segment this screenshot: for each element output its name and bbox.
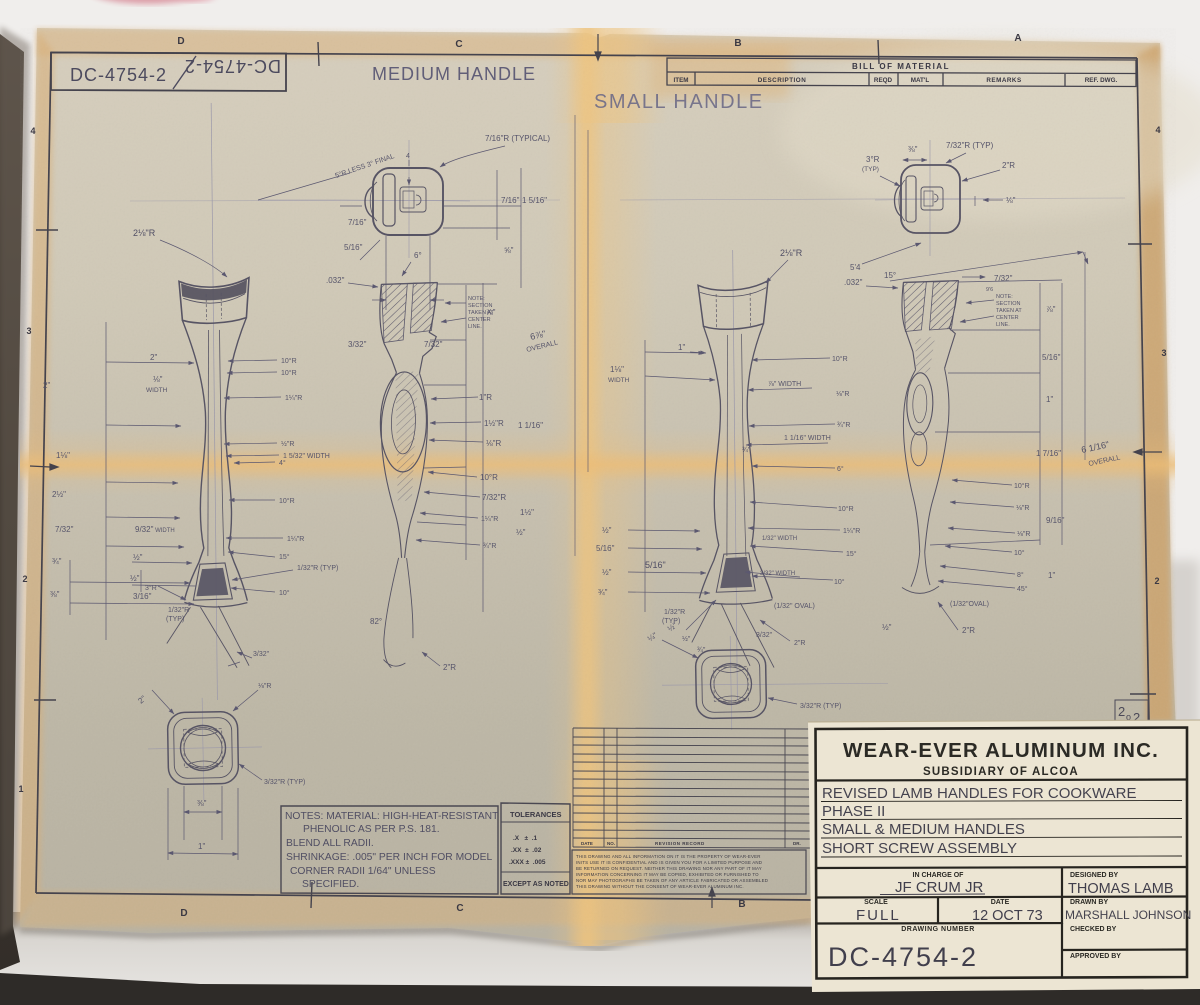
svg-text:(TYP): (TYP) bbox=[862, 166, 879, 173]
svg-text:10°: 10° bbox=[1014, 549, 1025, 557]
svg-text:3/16": 3/16" bbox=[133, 592, 152, 601]
svg-text:⅞": ⅞" bbox=[1046, 305, 1056, 314]
svg-text:6°: 6° bbox=[837, 465, 844, 473]
svg-text:3: 3 bbox=[26, 326, 31, 336]
svg-text:1⅛": 1⅛" bbox=[56, 451, 70, 460]
svg-text:LINE.: LINE. bbox=[468, 324, 482, 330]
svg-text:SHRINKAGE: .005" PER INCH FOR: SHRINKAGE: .005" PER INCH FOR MODEL bbox=[286, 852, 492, 863]
svg-text:BILL OF MATERIAL: BILL OF MATERIAL bbox=[852, 62, 950, 71]
svg-text:⅛"R: ⅛"R bbox=[486, 439, 502, 448]
svg-text:WEAR-EVER ALUMINUM INC.: WEAR-EVER ALUMINUM INC. bbox=[843, 739, 1159, 762]
svg-text:⅛"R: ⅛"R bbox=[1016, 505, 1029, 512]
svg-text:⅛"R: ⅛"R bbox=[1017, 531, 1030, 538]
svg-text:1⅛": 1⅛" bbox=[610, 365, 624, 374]
svg-text:WIDTH: WIDTH bbox=[146, 387, 168, 394]
svg-text:APPROVED BY: APPROVED BY bbox=[1070, 953, 1121, 960]
svg-text:1 5/32" WIDTH: 1 5/32" WIDTH bbox=[283, 453, 330, 460]
svg-text:SMALL HANDLE: SMALL HANDLE bbox=[594, 91, 764, 113]
svg-text:3/32" WIDTH: 3/32" WIDTH bbox=[760, 571, 795, 577]
svg-text:1 1/16": 1 1/16" bbox=[518, 421, 543, 430]
svg-text:5/16": 5/16" bbox=[344, 243, 363, 252]
svg-text:3°R: 3°R bbox=[866, 155, 880, 164]
svg-text:5'4: 5'4 bbox=[850, 263, 861, 272]
svg-text:NOR MAY PHOTOGRAPHS BE TAKEN O: NOR MAY PHOTOGRAPHS BE TAKEN OF ANY ARTI… bbox=[576, 878, 768, 883]
svg-text:TOLERANCES: TOLERANCES bbox=[510, 810, 562, 819]
svg-text:10°: 10° bbox=[279, 589, 290, 597]
svg-text:CENTER: CENTER bbox=[996, 315, 1019, 321]
svg-text:3: 3 bbox=[1161, 348, 1166, 358]
svg-text:12 OCT 73: 12 OCT 73 bbox=[972, 908, 1043, 924]
svg-text:1/32"R (TYP): 1/32"R (TYP) bbox=[297, 565, 338, 572]
svg-text:½": ½" bbox=[516, 528, 526, 537]
svg-text:ITEM: ITEM bbox=[673, 77, 688, 84]
svg-text:¾"R: ¾"R bbox=[483, 543, 496, 550]
svg-text:INITS USE IT IS CONFIDENTIAL A: INITS USE IT IS CONFIDENTIAL AND IS GIVE… bbox=[576, 860, 762, 865]
svg-text:(TYP): (TYP) bbox=[166, 616, 184, 623]
svg-text:B: B bbox=[734, 38, 741, 49]
svg-text:1½": 1½" bbox=[520, 508, 534, 517]
svg-text:C: C bbox=[456, 903, 463, 914]
svg-text:45°: 45° bbox=[1017, 585, 1028, 593]
svg-text:½": ½" bbox=[882, 623, 892, 632]
svg-text:⅜": ⅜" bbox=[908, 145, 918, 154]
svg-text:3/32"R (TYP): 3/32"R (TYP) bbox=[800, 703, 841, 710]
svg-text:REQD: REQD bbox=[874, 77, 893, 84]
svg-text:DR.: DR. bbox=[793, 841, 801, 846]
svg-text:BLEND ALL RADII.: BLEND ALL RADII. bbox=[286, 838, 374, 849]
svg-text:DESCRIPTION: DESCRIPTION bbox=[758, 77, 807, 84]
svg-text:½": ½" bbox=[133, 553, 143, 562]
svg-text:4°: 4° bbox=[279, 459, 286, 467]
svg-text:2": 2" bbox=[150, 353, 157, 362]
svg-text:9'6: 9'6 bbox=[986, 287, 993, 293]
svg-text:NO.: NO. bbox=[607, 841, 615, 846]
svg-text:½"R: ½"R bbox=[281, 440, 294, 448]
svg-text:C: C bbox=[455, 39, 462, 50]
svg-text:PHENOLIC AS PER P.S. 181.: PHENOLIC AS PER P.S. 181. bbox=[303, 824, 440, 835]
svg-text:15°: 15° bbox=[846, 550, 857, 558]
svg-text:10°R: 10°R bbox=[281, 357, 297, 365]
svg-text:1¼"R: 1¼"R bbox=[287, 536, 304, 543]
svg-text:½": ½" bbox=[130, 574, 140, 583]
svg-text:FULL: FULL bbox=[856, 907, 901, 924]
svg-text:¾": ¾" bbox=[598, 588, 608, 597]
svg-text:.XX ± .02: .XX ± .02 bbox=[511, 847, 542, 854]
svg-text:2⅛"R: 2⅛"R bbox=[133, 228, 156, 238]
svg-text:.032": .032" bbox=[326, 276, 345, 285]
svg-text:A: A bbox=[1014, 33, 1021, 44]
svg-text:¾": ¾" bbox=[697, 647, 706, 654]
svg-text:2⅛"R: 2⅛"R bbox=[780, 248, 803, 258]
svg-text:2"R: 2"R bbox=[794, 640, 805, 647]
svg-text:7/32"R (TYP): 7/32"R (TYP) bbox=[946, 141, 994, 150]
svg-text:SUBSIDIARY OF ALCOA: SUBSIDIARY OF ALCOA bbox=[923, 766, 1079, 778]
svg-text:7/16": 7/16" bbox=[348, 218, 367, 227]
svg-text:1/32" WIDTH: 1/32" WIDTH bbox=[762, 536, 797, 542]
svg-text:⅜": ⅜" bbox=[197, 799, 207, 808]
svg-text:5/16": 5/16" bbox=[1042, 353, 1061, 362]
svg-text:THIS DRAWING AND ALL INFORMATI: THIS DRAWING AND ALL INFORMATION ON IT I… bbox=[576, 854, 761, 859]
svg-text:WIDTH: WIDTH bbox=[608, 377, 630, 384]
svg-text:1¼"R: 1¼"R bbox=[481, 516, 498, 523]
svg-text:2: 2 bbox=[1118, 704, 1125, 719]
svg-text:⅛": ⅛" bbox=[153, 375, 163, 384]
svg-text:DC-4754-2: DC-4754-2 bbox=[828, 942, 978, 972]
svg-text:7/32": 7/32" bbox=[994, 274, 1013, 283]
svg-text:DRAWING NUMBER: DRAWING NUMBER bbox=[901, 926, 975, 933]
svg-text:SECTION: SECTION bbox=[996, 301, 1020, 307]
svg-text:B: B bbox=[738, 899, 745, 910]
svg-text:½": ½" bbox=[682, 635, 691, 643]
svg-text:.X ± .1: .X ± .1 bbox=[513, 835, 538, 842]
svg-text:NOTE:: NOTE: bbox=[996, 294, 1013, 300]
svg-text:REVISION RECORD: REVISION RECORD bbox=[655, 841, 705, 846]
svg-text:REVISED LAMB HANDLES FOR COOKW: REVISED LAMB HANDLES FOR COOKWARE bbox=[822, 785, 1137, 802]
svg-text:(1/32" OVAL): (1/32" OVAL) bbox=[774, 603, 815, 610]
svg-text:⅞" WIDTH: ⅞" WIDTH bbox=[768, 381, 801, 388]
svg-text:BE RETURNED ON REQUEST. NEITHE: BE RETURNED ON REQUEST. NEITHER THIS DRA… bbox=[576, 866, 762, 871]
svg-text:7/32": 7/32" bbox=[55, 525, 74, 534]
svg-text:2: 2 bbox=[1154, 576, 1159, 586]
svg-text:⅛"R: ⅛"R bbox=[836, 391, 849, 398]
svg-text:PHASE II: PHASE II bbox=[822, 803, 885, 820]
svg-text:JF CRUM JR: JF CRUM JR bbox=[895, 879, 983, 896]
svg-text:DATE: DATE bbox=[991, 899, 1010, 906]
svg-text:NOTES: MATERIAL: HIGH-HEAT-RES: NOTES: MATERIAL: HIGH-HEAT-RESISTANT bbox=[285, 811, 499, 822]
svg-text:1/32"R: 1/32"R bbox=[664, 609, 685, 616]
svg-text:1": 1" bbox=[1048, 571, 1055, 580]
svg-text:5/16": 5/16" bbox=[645, 560, 666, 570]
svg-text:82°: 82° bbox=[370, 617, 382, 626]
svg-text:MEDIUM HANDLE: MEDIUM HANDLE bbox=[372, 64, 536, 84]
svg-text:3°R: 3°R bbox=[145, 584, 157, 592]
svg-text:3/32": 3/32" bbox=[348, 340, 367, 349]
svg-text:10°R: 10°R bbox=[480, 473, 498, 482]
svg-text:1": 1" bbox=[678, 343, 685, 352]
svg-text:7/16"R (TYPICAL): 7/16"R (TYPICAL) bbox=[485, 134, 550, 143]
svg-text:DRAWN BY: DRAWN BY bbox=[1070, 899, 1108, 906]
svg-text:INFORMATION CONCERNING IT MAY: INFORMATION CONCERNING IT MAY BE COPIED,… bbox=[576, 872, 759, 877]
svg-text:¾"R: ¾"R bbox=[837, 422, 850, 429]
svg-text:⅜": ⅜" bbox=[50, 590, 60, 599]
svg-text:SMALL & MEDIUM HANDLES: SMALL & MEDIUM HANDLES bbox=[822, 821, 1025, 838]
svg-text:2: 2 bbox=[22, 574, 27, 584]
svg-text:⅝": ⅝" bbox=[504, 246, 514, 255]
svg-text:1 1/16" WIDTH: 1 1/16" WIDTH bbox=[784, 435, 831, 442]
svg-text:SHORT SCREW ASSEMBLY: SHORT SCREW ASSEMBLY bbox=[822, 840, 1017, 857]
svg-text:TAKEN AT: TAKEN AT bbox=[996, 308, 1022, 314]
svg-text:10°R: 10°R bbox=[1014, 482, 1030, 490]
svg-text:10°R: 10°R bbox=[838, 505, 854, 513]
svg-text:4: 4 bbox=[1155, 125, 1160, 135]
svg-text:15°: 15° bbox=[884, 271, 896, 280]
svg-text:2"R: 2"R bbox=[962, 626, 975, 635]
svg-text:MARSHALL JOHNSON: MARSHALL JOHNSON bbox=[1065, 908, 1191, 922]
svg-text:CHECKED BY: CHECKED BY bbox=[1070, 926, 1117, 933]
svg-text:DC-4754-2: DC-4754-2 bbox=[70, 65, 167, 85]
svg-text:⅛"R: ⅛"R bbox=[258, 683, 271, 690]
svg-text:THOMAS LAMB: THOMAS LAMB bbox=[1068, 881, 1174, 897]
svg-text:SCALE: SCALE bbox=[864, 899, 888, 906]
svg-text:EXCEPT AS NOTED: EXCEPT AS NOTED bbox=[503, 881, 569, 888]
svg-text:1": 1" bbox=[1046, 395, 1053, 404]
svg-text:3/32": 3/32" bbox=[756, 632, 773, 639]
svg-text:IN CHARGE OF: IN CHARGE OF bbox=[913, 872, 965, 879]
svg-text:2": 2" bbox=[43, 381, 50, 390]
svg-text:10°R: 10°R bbox=[279, 497, 295, 505]
svg-text:15°: 15° bbox=[279, 553, 290, 561]
svg-text:.XXX ± .005: .XXX ± .005 bbox=[509, 859, 546, 866]
svg-text:.032": .032" bbox=[844, 278, 863, 287]
svg-text:CORNER RADII 1/64" UNLESS: CORNER RADII 1/64" UNLESS bbox=[290, 866, 436, 877]
svg-text:DESIGNED BY: DESIGNED BY bbox=[1070, 872, 1119, 879]
svg-text:1": 1" bbox=[198, 842, 205, 851]
svg-text:10°R: 10°R bbox=[281, 369, 297, 377]
svg-text:2½": 2½" bbox=[52, 490, 66, 499]
svg-text:⅛": ⅛" bbox=[1006, 196, 1016, 205]
svg-text:2"R: 2"R bbox=[1002, 161, 1015, 170]
svg-text:5/16": 5/16" bbox=[596, 544, 615, 553]
svg-text:1"R: 1"R bbox=[479, 393, 492, 402]
svg-text:4: 4 bbox=[30, 126, 35, 136]
svg-text:1: 1 bbox=[18, 784, 23, 794]
svg-text:7/32"R: 7/32"R bbox=[482, 493, 506, 502]
svg-text:DC-4754-2: DC-4754-2 bbox=[184, 56, 281, 76]
svg-text:¾": ¾" bbox=[742, 447, 751, 454]
svg-text:LINE.: LINE. bbox=[996, 322, 1010, 328]
svg-text:REMARKS: REMARKS bbox=[986, 77, 1021, 84]
svg-text:2"R: 2"R bbox=[443, 663, 456, 672]
svg-text:7/16": 7/16" bbox=[501, 196, 520, 205]
svg-text:9/16": 9/16" bbox=[1046, 516, 1065, 525]
svg-text:THIS DRAWING WITHOUT THE CONSE: THIS DRAWING WITHOUT THE CONSENT OF WEAR… bbox=[576, 884, 744, 889]
svg-text:1¼"R: 1¼"R bbox=[285, 395, 302, 402]
svg-text:(1/32"OVAL): (1/32"OVAL) bbox=[950, 601, 989, 608]
svg-text:8°: 8° bbox=[1017, 571, 1024, 579]
svg-text:1½"R: 1½"R bbox=[484, 419, 504, 428]
svg-text:1 7/16": 1 7/16" bbox=[1036, 449, 1061, 458]
svg-text:1¼"R: 1¼"R bbox=[843, 528, 860, 535]
svg-text:¾": ¾" bbox=[52, 557, 62, 566]
svg-text:DATE: DATE bbox=[581, 841, 593, 846]
svg-text:1 5/16": 1 5/16" bbox=[522, 196, 547, 205]
svg-text:MAT'L: MAT'L bbox=[911, 77, 930, 84]
svg-text:CENTER: CENTER bbox=[468, 317, 491, 323]
svg-text:REF. DWG.: REF. DWG. bbox=[1085, 77, 1118, 84]
svg-text:10°R: 10°R bbox=[832, 355, 848, 363]
svg-text:½": ½" bbox=[602, 568, 612, 577]
svg-text:1/32"R: 1/32"R bbox=[168, 607, 189, 614]
svg-text:3/32": 3/32" bbox=[253, 651, 270, 658]
svg-text:6°: 6° bbox=[414, 251, 422, 260]
svg-text:10°: 10° bbox=[834, 578, 845, 586]
svg-text:SPECIFIED.: SPECIFIED. bbox=[302, 879, 359, 890]
svg-text:⅞": ⅞" bbox=[486, 308, 496, 317]
svg-text:D: D bbox=[177, 36, 184, 47]
svg-text:D: D bbox=[180, 908, 187, 919]
svg-text:4: 4 bbox=[406, 153, 410, 160]
svg-text:½": ½" bbox=[602, 526, 612, 535]
svg-text:3/32"R (TYP): 3/32"R (TYP) bbox=[264, 779, 305, 786]
